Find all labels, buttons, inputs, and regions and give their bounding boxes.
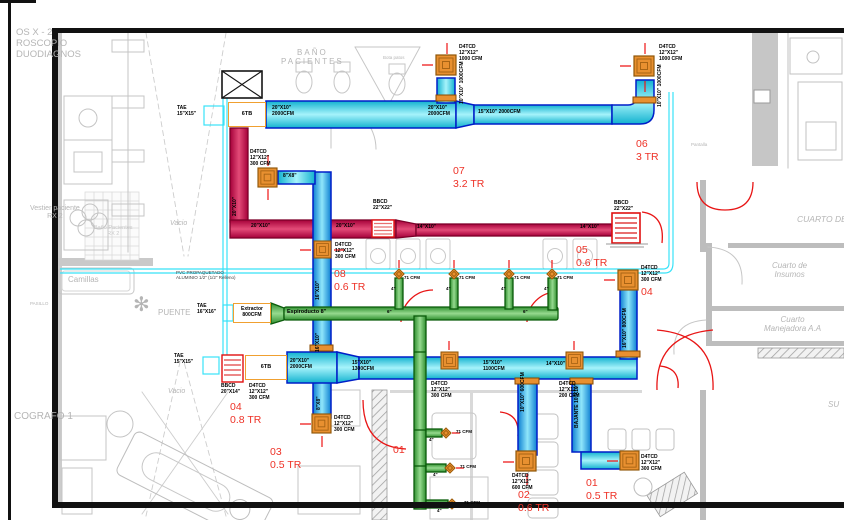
label-bot-seg3: 15"X10"1100CFM xyxy=(483,361,505,373)
label-pvc-pipe: PVC PROPAQUETADOALUMINIO 1/2" (1/2" Rell… xyxy=(176,270,235,280)
label-diffuser-a: D4TCD12"X12"1000 CFM xyxy=(459,45,482,62)
label-71cfm-t3: 71 CFM xyxy=(514,275,530,280)
label-riser-c1: 16"X10" xyxy=(316,281,322,300)
label-diffuser-f-mid: D4TCD12"X12"300 CFM xyxy=(431,382,452,399)
zone-label-01a: 01 xyxy=(393,444,405,457)
label-4in-t4: 4" xyxy=(544,286,549,291)
dampers xyxy=(310,95,656,384)
label-riser-d: 16"X10" 800CFM xyxy=(623,308,629,348)
unit-6tb-top: 6TB xyxy=(228,102,266,127)
zone-label-07: 073.2 TR xyxy=(453,165,484,190)
label-71cfm-r2: 71 CFM xyxy=(460,464,476,469)
label-seg-b: 20"X10"2000CFM xyxy=(428,106,450,118)
label-diffuser-d: D4TCD12"X12"300 CFM xyxy=(335,243,356,260)
label-riser-a: 10"X10" 1000CFM xyxy=(460,61,466,104)
room-label-ecografo: COGRAFO 1 xyxy=(14,411,73,423)
room-label-cuarto-de: CUARTO DE xyxy=(797,215,844,225)
label-diffuser-c: D4TCD12"X12"300 CFM xyxy=(250,150,271,167)
label-4in-r3: 4" xyxy=(437,508,442,513)
plant-icon: ✻ xyxy=(133,294,150,317)
zone-label-03: 030.5 TR xyxy=(270,446,301,471)
label-tae-bottom: TAE15"X15" xyxy=(174,354,193,366)
room-label-manejadora: Cuarto Manejadora A.A xyxy=(764,315,821,333)
zone-label-05: 050.6 TR xyxy=(576,244,607,269)
label-diffuser-k: D4TCD12"X12"300 CFM xyxy=(334,416,355,433)
zone-label-04: 040.8 TR xyxy=(230,401,261,426)
label-red-seg3: 14"X10" xyxy=(417,225,436,231)
zone-label-06: 063 TR xyxy=(636,138,659,163)
room-label-suite: OS X - 2 ROSCOPIO DUODIAGNOS xyxy=(16,28,81,61)
label-red-riser: 20"X10" xyxy=(233,197,239,216)
room-label-bano-rx2: Baño Pacientes RX 2 xyxy=(94,225,133,238)
label-grille-end: BBCD22"X22" xyxy=(614,201,633,213)
unit-6tb-bottom: 6TB xyxy=(245,355,287,380)
label-bot-seg1: 20"X10"2000CFM xyxy=(290,359,312,371)
room-label-pasillo: PASILLO xyxy=(30,301,48,306)
label-8x8: 8"X8" xyxy=(283,174,297,180)
label-seg-c: 15"X10" 2000CFM xyxy=(478,110,521,116)
extractor-box: Extractor 800CFM xyxy=(233,303,271,323)
label-diffuser-e-left: D4TCD12"X12"300 CFM xyxy=(249,384,270,401)
label-espiroducto: Espiroducto 8" xyxy=(287,309,326,315)
label-71cfm-t2: 71 CFM xyxy=(459,275,475,280)
plan-drawing xyxy=(0,0,844,520)
label-diffuser-j: D4TCD12"X12"300 CFM xyxy=(641,455,662,472)
label-seg-a: 20"X10"2000CFM xyxy=(272,106,294,118)
label-71cfm-r3: 71 CFM xyxy=(464,500,480,505)
hvac-duct-plan: OS X - 2 ROSCOPIO DUODIAGNOS BAÑO PACIEN… xyxy=(0,0,844,520)
label-red-seg2: 20"X10" xyxy=(336,224,355,230)
label-diffuser-h: D4TCD12"X12"300 CFM xyxy=(641,266,662,283)
label-red-seg4: 14"X10" xyxy=(580,225,599,231)
label-4in-t3: 4" xyxy=(501,286,506,291)
label-grille-left: BBCD20"X14" xyxy=(221,384,240,396)
label-tae-top: TAE15"X15" xyxy=(177,106,196,118)
zone-label-04b: 04 xyxy=(641,286,653,299)
exhaust-box-icon xyxy=(222,71,262,98)
label-bot-seg4: 14"X10" xyxy=(546,362,565,368)
label-4in-r2: 4" xyxy=(433,472,438,477)
label-riser-b: 10"X10" 1000CFM xyxy=(658,64,664,107)
label-red-seg1: 20"X10" xyxy=(251,224,270,230)
room-label-pantalla: Pantalla xyxy=(691,142,707,147)
zone-label-01b: 010.5 TR xyxy=(586,477,617,502)
room-label-vacio-bottom: Vacio xyxy=(168,388,185,396)
label-tae-mid: TAE16"X16" xyxy=(197,304,216,316)
room-label-vestier: Vestier paciente RX 2 xyxy=(30,205,80,221)
label-71cfm-r1: 71 CFM xyxy=(456,429,472,434)
room-label-bano-pacientes: BAÑO PACIENTES xyxy=(281,48,344,66)
room-label-camillas: Camillas xyxy=(68,275,99,284)
zone-label-02: 020.6 TR xyxy=(518,489,549,514)
label-riser-e: 10"X10" 600CFM xyxy=(521,372,527,412)
label-4in-t1: 4" xyxy=(391,286,396,291)
label-grille-mid: BBCD22"X22" xyxy=(373,200,392,212)
label-6in-b: 6" xyxy=(523,309,528,314)
label-71cfm-t1: 71 CFM xyxy=(404,275,420,280)
label-riser-c2: 16"X10" xyxy=(316,333,322,352)
room-label-su: SU xyxy=(828,400,839,409)
label-bot-seg2: 15"X10"1300CFM xyxy=(352,361,374,373)
room-label-bota-patos: Bota patos xyxy=(383,55,405,60)
room-label-puente: PUENTE xyxy=(158,308,190,317)
label-diffuser-b: D4TCD12"X12"1000 CFM xyxy=(659,45,682,62)
label-71cfm-t4: 71 CFM xyxy=(557,275,573,280)
label-riser-g: 8"X8" xyxy=(317,396,323,410)
label-4in-r1: 4" xyxy=(429,437,434,442)
label-6in-a: 6" xyxy=(387,309,392,314)
label-4in-t2: 4" xyxy=(446,286,451,291)
zone-label-08: 080.6 TR xyxy=(334,268,365,293)
label-riser-f: BAJANTE 10"X10" xyxy=(575,384,581,428)
room-label-vacio-top: Vacio xyxy=(170,220,187,228)
room-label-insumos: Cuarto de Insumos xyxy=(772,261,807,279)
